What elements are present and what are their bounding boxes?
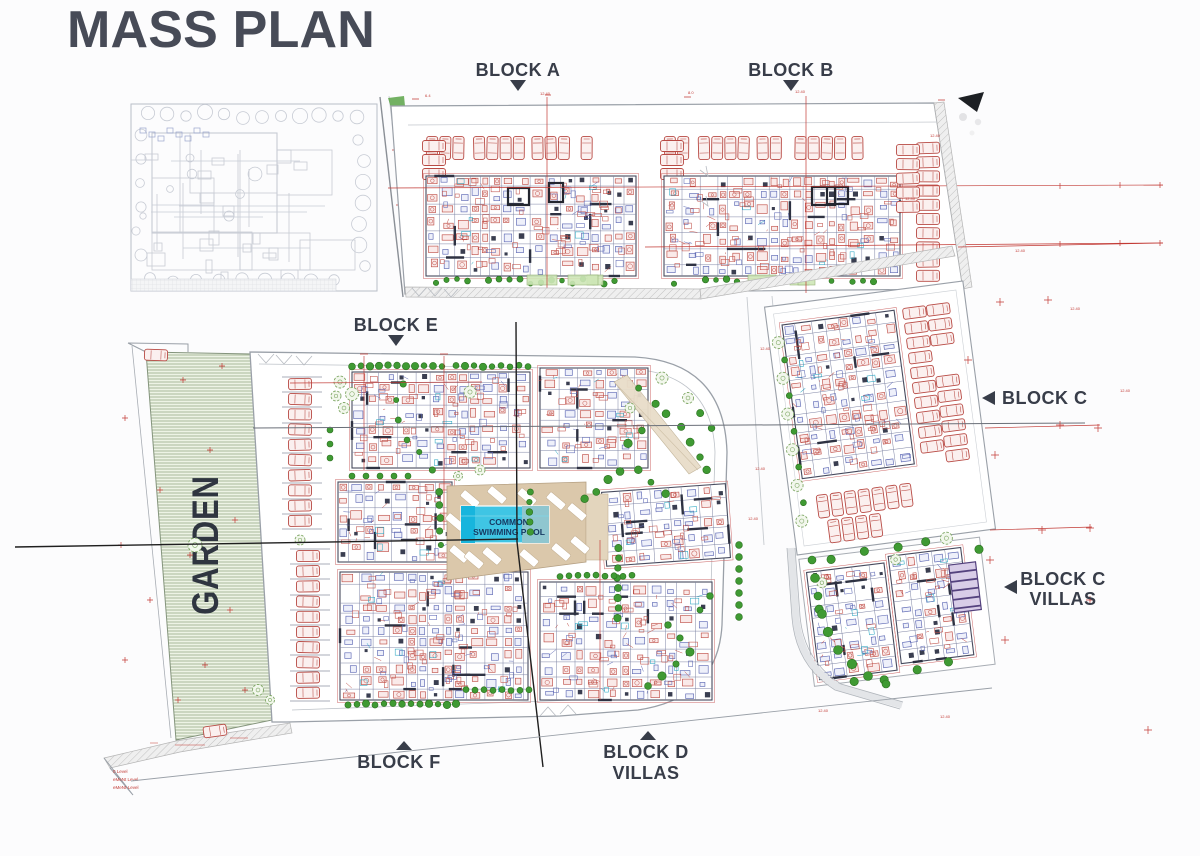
- svg-text:8.0: 8.0: [688, 90, 694, 95]
- svg-text:12.40: 12.40: [795, 89, 806, 94]
- svg-text:12.40: 12.40: [905, 196, 916, 201]
- svg-text:12.40: 12.40: [1070, 306, 1081, 311]
- svg-text:eMeNt Level: eMeNt Level: [113, 777, 138, 782]
- svg-text:BLOCK E: BLOCK E: [354, 315, 439, 335]
- svg-text:BLOCK F: BLOCK F: [357, 752, 441, 772]
- svg-text:6.4: 6.4: [425, 93, 431, 98]
- svg-text:12.40: 12.40: [760, 346, 771, 351]
- svg-text:12.40: 12.40: [930, 133, 941, 138]
- svg-text:12.40: 12.40: [540, 91, 551, 96]
- svg-text:12.40: 12.40: [1120, 388, 1131, 393]
- svg-text:12.40: 12.40: [940, 714, 951, 719]
- svg-text:VILLAS: VILLAS: [612, 763, 679, 783]
- svg-text:0 Level: 0 Level: [113, 769, 128, 774]
- svg-text:MASS PLAN: MASS PLAN: [67, 1, 375, 59]
- svg-text:BLOCK B: BLOCK B: [748, 60, 834, 80]
- svg-text:BLOCK A: BLOCK A: [476, 60, 561, 80]
- svg-text:12.40: 12.40: [748, 516, 759, 521]
- svg-text:12.40: 12.40: [755, 466, 766, 471]
- svg-text:BLOCK D: BLOCK D: [603, 742, 689, 762]
- svg-text:VILLAS: VILLAS: [1029, 589, 1096, 609]
- svg-text:BLOCK C: BLOCK C: [1002, 388, 1088, 408]
- svg-text:eMeNt-Level: eMeNt-Level: [113, 785, 139, 790]
- svg-text:12.40: 12.40: [1015, 248, 1026, 253]
- svg-text:SWIMMING POOL: SWIMMING POOL: [473, 527, 545, 537]
- svg-text:BLOCK C: BLOCK C: [1020, 569, 1106, 589]
- svg-text:COMMON: COMMON: [489, 517, 529, 527]
- svg-text:12.40: 12.40: [818, 708, 829, 713]
